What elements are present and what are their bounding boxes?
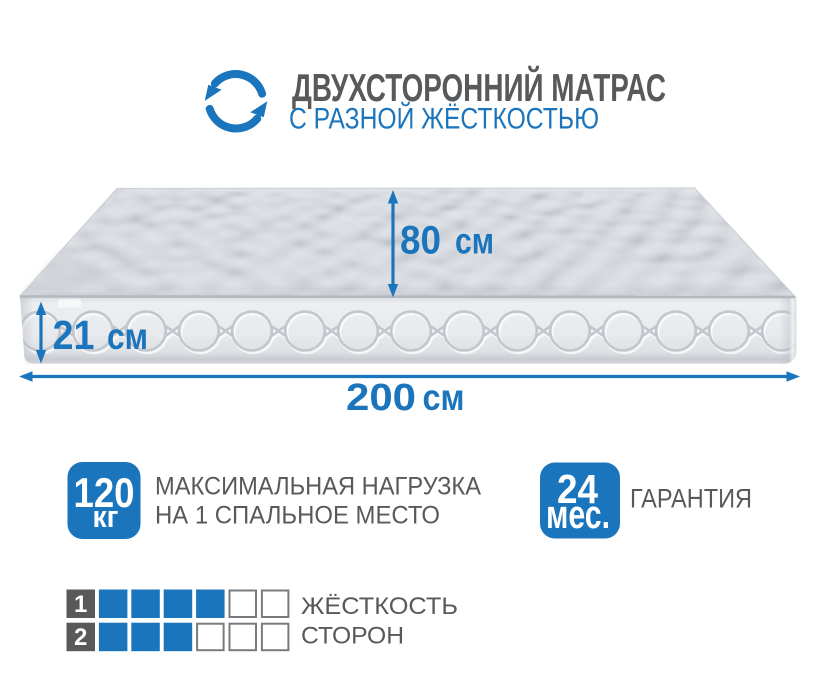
- svg-text:мес.: мес.: [546, 493, 610, 537]
- svg-text:см: см: [455, 221, 494, 262]
- svg-text:ЖЁСТКОСТЬ: ЖЁСТКОСТЬ: [301, 593, 458, 620]
- svg-text:21: 21: [53, 312, 95, 358]
- svg-text:кг: кг: [93, 499, 119, 534]
- svg-text:см: см: [107, 316, 148, 357]
- svg-text:200: 200: [346, 377, 416, 419]
- svg-text:НА 1 СПАЛЬНОЕ МЕСТО: НА 1 СПАЛЬНОЕ МЕСТО: [155, 502, 440, 530]
- svg-text:см: см: [423, 377, 465, 418]
- svg-text:1: 1: [74, 591, 87, 618]
- svg-text:С РАЗНОЙ ЖЁСТКОСТЬЮ: С РАЗНОЙ ЖЁСТКОСТЬЮ: [289, 102, 599, 136]
- svg-text:ГАРАНТИЯ: ГАРАНТИЯ: [630, 484, 752, 514]
- svg-text:2: 2: [74, 624, 87, 651]
- svg-text:СТОРОН: СТОРОН: [301, 623, 404, 650]
- svg-text:МАКСИМАЛЬНАЯ НАГРУЗКА: МАКСИМАЛЬНАЯ НАГРУЗКА: [155, 473, 481, 501]
- svg-text:80: 80: [400, 219, 441, 263]
